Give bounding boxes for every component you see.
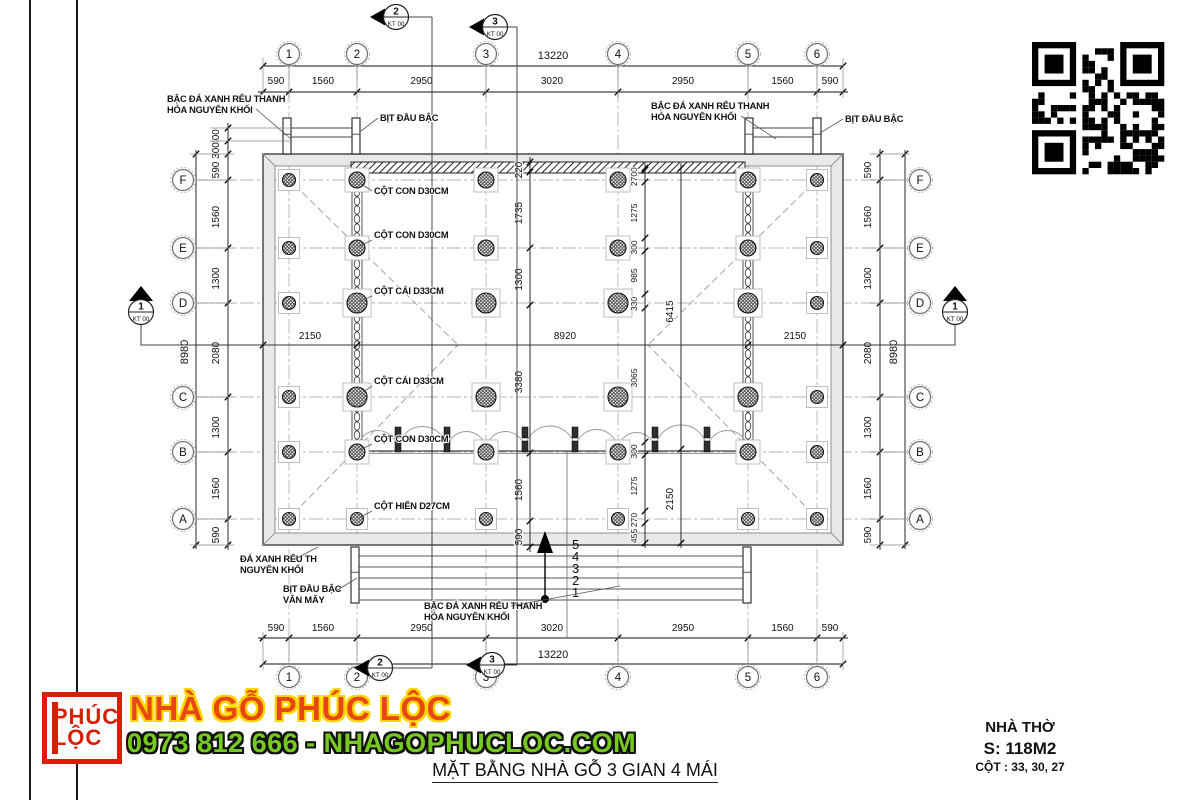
svg-text:CỘT CON D30CM: CỘT CON D30CM — [374, 433, 449, 444]
svg-text:C: C — [179, 392, 187, 404]
svg-text:2950: 2950 — [672, 76, 695, 87]
svg-text:2: 2 — [377, 658, 383, 669]
logo-word-2: LỘC — [53, 728, 119, 749]
svg-text:KT 00: KT 00 — [372, 672, 389, 679]
svg-text:HÓA NGUYÊN KHỐI: HÓA NGUYÊN KHỐI — [167, 104, 253, 115]
svg-text:2950: 2950 — [410, 76, 433, 87]
svg-text:3380: 3380 — [514, 370, 525, 393]
svg-text:BẬC ĐÁ XANH RÊU THANH: BẬC ĐÁ XANH RÊU THANH — [651, 100, 770, 111]
svg-text:1275: 1275 — [629, 203, 639, 222]
svg-text:1: 1 — [952, 302, 958, 313]
svg-text:2150: 2150 — [784, 331, 807, 342]
svg-text:8980: 8980 — [888, 340, 900, 364]
stone-platform — [263, 154, 843, 545]
svg-text:D: D — [179, 298, 187, 310]
svg-text:590: 590 — [863, 526, 874, 543]
svg-text:2950: 2950 — [672, 623, 695, 634]
walls — [351, 162, 753, 454]
svg-text:1300: 1300 — [211, 267, 222, 290]
svg-text:5: 5 — [745, 49, 751, 61]
svg-text:590: 590 — [268, 76, 285, 87]
svg-text:E: E — [179, 243, 187, 255]
svg-text:KT 00: KT 00 — [484, 669, 501, 676]
svg-text:1560: 1560 — [211, 205, 222, 228]
svg-text:B: B — [179, 447, 187, 459]
qr-code — [1028, 38, 1172, 182]
svg-text:1560: 1560 — [771, 623, 794, 634]
svg-text:2: 2 — [354, 49, 360, 61]
project-name: NHÀ THỜ — [930, 718, 1110, 738]
svg-text:8920: 8920 — [554, 331, 577, 342]
drawing-sheet: 5432159015602950302029501560590132205901… — [0, 0, 1200, 800]
svg-text:BẬC ĐÁ XANH RÊU THANH: BẬC ĐÁ XANH RÊU THANH — [424, 600, 543, 611]
svg-text:NGUYÊN KHỐI: NGUYÊN KHỐI — [240, 564, 303, 575]
svg-text:1: 1 — [286, 49, 292, 61]
svg-text:BẬC ĐÁ XANH RÊU THANH: BẬC ĐÁ XANH RÊU THANH — [167, 93, 286, 104]
svg-text:3065: 3065 — [629, 368, 639, 387]
svg-text:ĐÁ XANH RÊU TH: ĐÁ XANH RÊU TH — [240, 553, 317, 564]
svg-text:1560: 1560 — [771, 76, 794, 87]
svg-text:2150: 2150 — [299, 331, 322, 342]
svg-text:F: F — [916, 175, 923, 187]
svg-text:B: B — [916, 447, 924, 459]
brand-logo: PHÚC LỘC — [42, 692, 122, 764]
svg-text:220: 220 — [514, 161, 525, 178]
svg-text:2: 2 — [354, 672, 360, 684]
svg-text:D: D — [916, 298, 924, 310]
svg-text:6: 6 — [814, 672, 820, 684]
svg-text:KT 00: KT 00 — [487, 31, 504, 38]
svg-text:8980: 8980 — [179, 340, 191, 364]
svg-text:1300: 1300 — [863, 267, 874, 290]
svg-text:5: 5 — [745, 672, 751, 684]
svg-text:BỊT ĐẦU BẬC: BỊT ĐẦU BẬC — [845, 113, 904, 124]
svg-text:1560: 1560 — [211, 477, 222, 500]
svg-text:VÂN MÂY: VÂN MÂY — [283, 594, 325, 605]
svg-text:590: 590 — [514, 528, 525, 545]
svg-text:590: 590 — [211, 161, 222, 178]
svg-text:1: 1 — [138, 302, 144, 313]
svg-text:590: 590 — [822, 623, 839, 634]
svg-text:2: 2 — [393, 7, 399, 18]
svg-text:1560: 1560 — [312, 623, 335, 634]
svg-text:6415: 6415 — [665, 300, 676, 323]
project-columns: CỘT : 33, 30, 27 — [930, 759, 1110, 775]
svg-text:CỘT CON D30CM: CỘT CON D30CM — [374, 229, 449, 240]
svg-text:590: 590 — [863, 161, 874, 178]
svg-text:F: F — [179, 175, 186, 187]
svg-text:E: E — [916, 243, 924, 255]
svg-text:1: 1 — [572, 585, 579, 600]
svg-text:CỘT HIÊN D27CM: CỘT HIÊN D27CM — [374, 500, 450, 511]
svg-text:300: 300 — [629, 240, 639, 254]
svg-text:6: 6 — [814, 49, 820, 61]
svg-text:KT 00: KT 00 — [133, 316, 150, 323]
svg-text:4: 4 — [615, 672, 622, 684]
svg-text:3020: 3020 — [541, 623, 564, 634]
svg-text:KT 00: KT 00 — [947, 316, 964, 323]
svg-text:HÓA NGUYÊN KHỐI: HÓA NGUYÊN KHỐI — [651, 111, 737, 122]
svg-text:CỘT CON D30CM: CỘT CON D30CM — [374, 185, 449, 196]
svg-text:1560: 1560 — [863, 205, 874, 228]
roof-hip-lines — [263, 154, 843, 545]
svg-text:1275: 1275 — [629, 476, 639, 495]
svg-text:CỘT CÁI D33CM: CỘT CÁI D33CM — [374, 285, 444, 296]
brand-name: NHÀ GỖ PHÚC LỘC — [130, 690, 451, 728]
brand-contact: 0973 812 666 - NHAGOPHUCLOC.COM — [127, 728, 636, 759]
floor-plan-drawing: 5432159015602950302029501560590132205901… — [0, 0, 1200, 800]
svg-text:590: 590 — [822, 76, 839, 87]
svg-text:590: 590 — [268, 623, 285, 634]
svg-text:3020: 3020 — [541, 76, 564, 87]
svg-text:1560: 1560 — [312, 76, 335, 87]
svg-text:1: 1 — [286, 672, 292, 684]
svg-text:590: 590 — [211, 526, 222, 543]
project-area: S: 118M2 — [930, 738, 1110, 759]
svg-text:1300: 1300 — [211, 416, 222, 439]
svg-text:455: 455 — [629, 529, 639, 543]
drawing-title: MẶT BẰNG NHÀ GỖ 3 GIAN 4 MÁI — [330, 760, 820, 781]
svg-text:13220: 13220 — [538, 50, 569, 62]
logo-frame-bar — [52, 702, 58, 754]
svg-text:300: 300 — [629, 444, 639, 458]
logo-text: PHÚC LỘC — [53, 707, 119, 749]
svg-text:C: C — [916, 392, 924, 404]
svg-text:270: 270 — [629, 513, 639, 527]
project-info: NHÀ THỜ S: 118M2 CỘT : 33, 30, 27 — [930, 718, 1110, 775]
svg-text:3: 3 — [489, 655, 495, 666]
svg-text:3: 3 — [492, 17, 498, 28]
svg-text:KT 00: KT 00 — [388, 21, 405, 28]
svg-text:BỊT ĐẦU BẬC: BỊT ĐẦU BẬC — [283, 583, 342, 594]
svg-text:BỊT ĐẦU BẬC: BỊT ĐẦU BẬC — [380, 112, 439, 123]
svg-text:985: 985 — [629, 268, 639, 282]
svg-text:270: 270 — [629, 172, 639, 186]
svg-text:2150: 2150 — [665, 487, 676, 510]
svg-text:1560: 1560 — [514, 478, 525, 501]
svg-text:2950: 2950 — [410, 623, 433, 634]
svg-text:CỘT CÁI D33CM: CỘT CÁI D33CM — [374, 375, 444, 386]
svg-text:13220: 13220 — [538, 649, 569, 661]
svg-text:330: 330 — [629, 297, 639, 311]
svg-text:1560: 1560 — [863, 477, 874, 500]
svg-text:1300: 1300 — [514, 268, 525, 291]
svg-text:3: 3 — [483, 49, 489, 61]
svg-text:1300: 1300 — [863, 416, 874, 439]
svg-text:A: A — [916, 514, 924, 526]
svg-text:300: 300 — [211, 142, 222, 159]
svg-text:HÓA NGUYÊN KHỐI: HÓA NGUYÊN KHỐI — [424, 611, 510, 622]
svg-text:4: 4 — [615, 49, 622, 61]
svg-text:1735: 1735 — [514, 201, 525, 224]
svg-text:A: A — [179, 514, 187, 526]
